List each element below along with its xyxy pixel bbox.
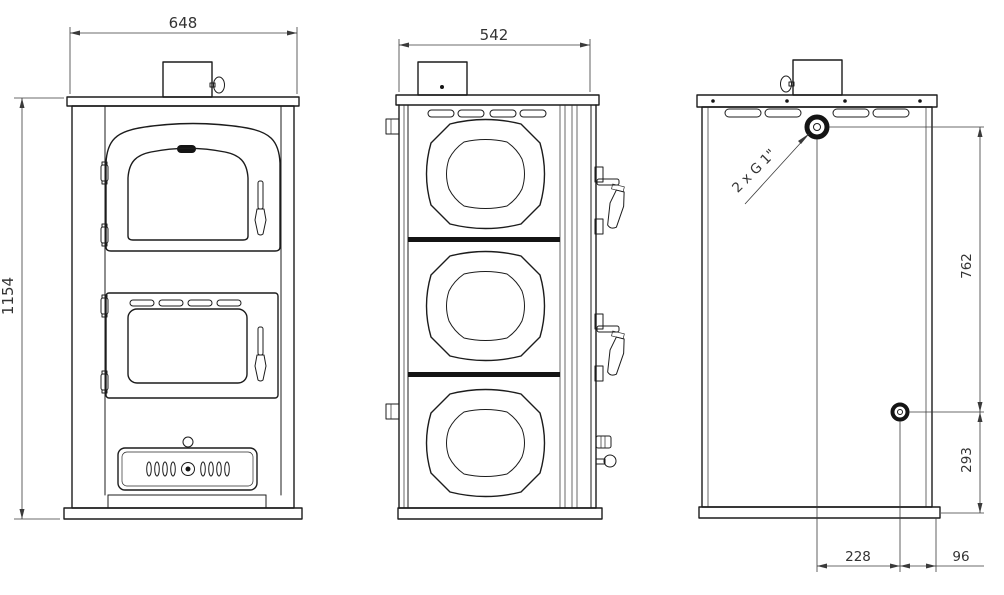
upper-door-glass: [128, 148, 248, 240]
stove-body-side: [399, 105, 596, 508]
ash-drawer-vents: [147, 462, 230, 476]
decorative-panel-middle: [427, 252, 545, 361]
panel-divider-lower: [408, 372, 560, 377]
top-plate-side: [396, 95, 599, 105]
lower-door-glass: [128, 309, 247, 383]
door-handle-side-upper: [595, 167, 628, 234]
dim-label-total-height: 1154: [0, 277, 17, 315]
dim-label-outlet-span: 762: [959, 253, 975, 279]
thread-annotation: 2 x G 1": [729, 133, 810, 204]
decorative-panel-top: [427, 120, 545, 229]
side-view: 542: [386, 26, 628, 519]
plinth-front: [108, 495, 266, 508]
top-plate-back: [697, 95, 937, 107]
base-plate-side: [398, 508, 602, 519]
top-plate-screws: [711, 99, 922, 103]
dim-depth: 542: [399, 26, 590, 92]
side-vent-slots: [428, 110, 546, 117]
back-view: 2 x G 1" 762 293 228 96: [697, 60, 984, 572]
base-plate-back: [699, 507, 940, 518]
dim-outlet-vertical: 762 293: [829, 127, 984, 513]
top-plate-front: [67, 97, 299, 106]
panel-divider-upper: [408, 237, 560, 242]
door-handle-side-lower: [595, 314, 628, 381]
hinge-pins-side: [386, 119, 399, 419]
water-outlet-bottom: [893, 405, 908, 420]
drawing-canvas: 648 1154: [0, 0, 1004, 595]
ash-drawer: [118, 448, 257, 490]
air-control-knob: [183, 437, 193, 447]
flue-collar-back: [781, 60, 843, 95]
thread-annotation-label: 2 x G 1": [729, 146, 779, 196]
dim-total-height: 1154: [0, 98, 64, 519]
upper-door: [101, 124, 280, 252]
water-outlet-top: [807, 117, 827, 137]
air-knob-side: [596, 455, 616, 467]
base-plate-front: [64, 508, 302, 519]
ash-knob-side: [596, 436, 611, 448]
dim-front-width: 648: [70, 14, 297, 94]
dim-label-offset-center: 228: [845, 549, 871, 565]
dim-label-offset-edge: 96: [952, 549, 969, 565]
dim-label-outlet-bottom: 293: [959, 447, 975, 473]
lower-door-vent-slots: [130, 300, 241, 306]
front-view: 648 1154: [0, 14, 302, 519]
lower-door-handle: [255, 327, 266, 381]
dim-label-front-width: 648: [169, 14, 198, 32]
lower-door: [101, 293, 278, 398]
dim-label-depth: 542: [480, 26, 509, 44]
upper-door-handle: [255, 181, 266, 235]
flue-collar-side: [418, 62, 467, 95]
flue-collar-front: [163, 62, 225, 97]
decorative-panel-bottom: [427, 390, 545, 497]
